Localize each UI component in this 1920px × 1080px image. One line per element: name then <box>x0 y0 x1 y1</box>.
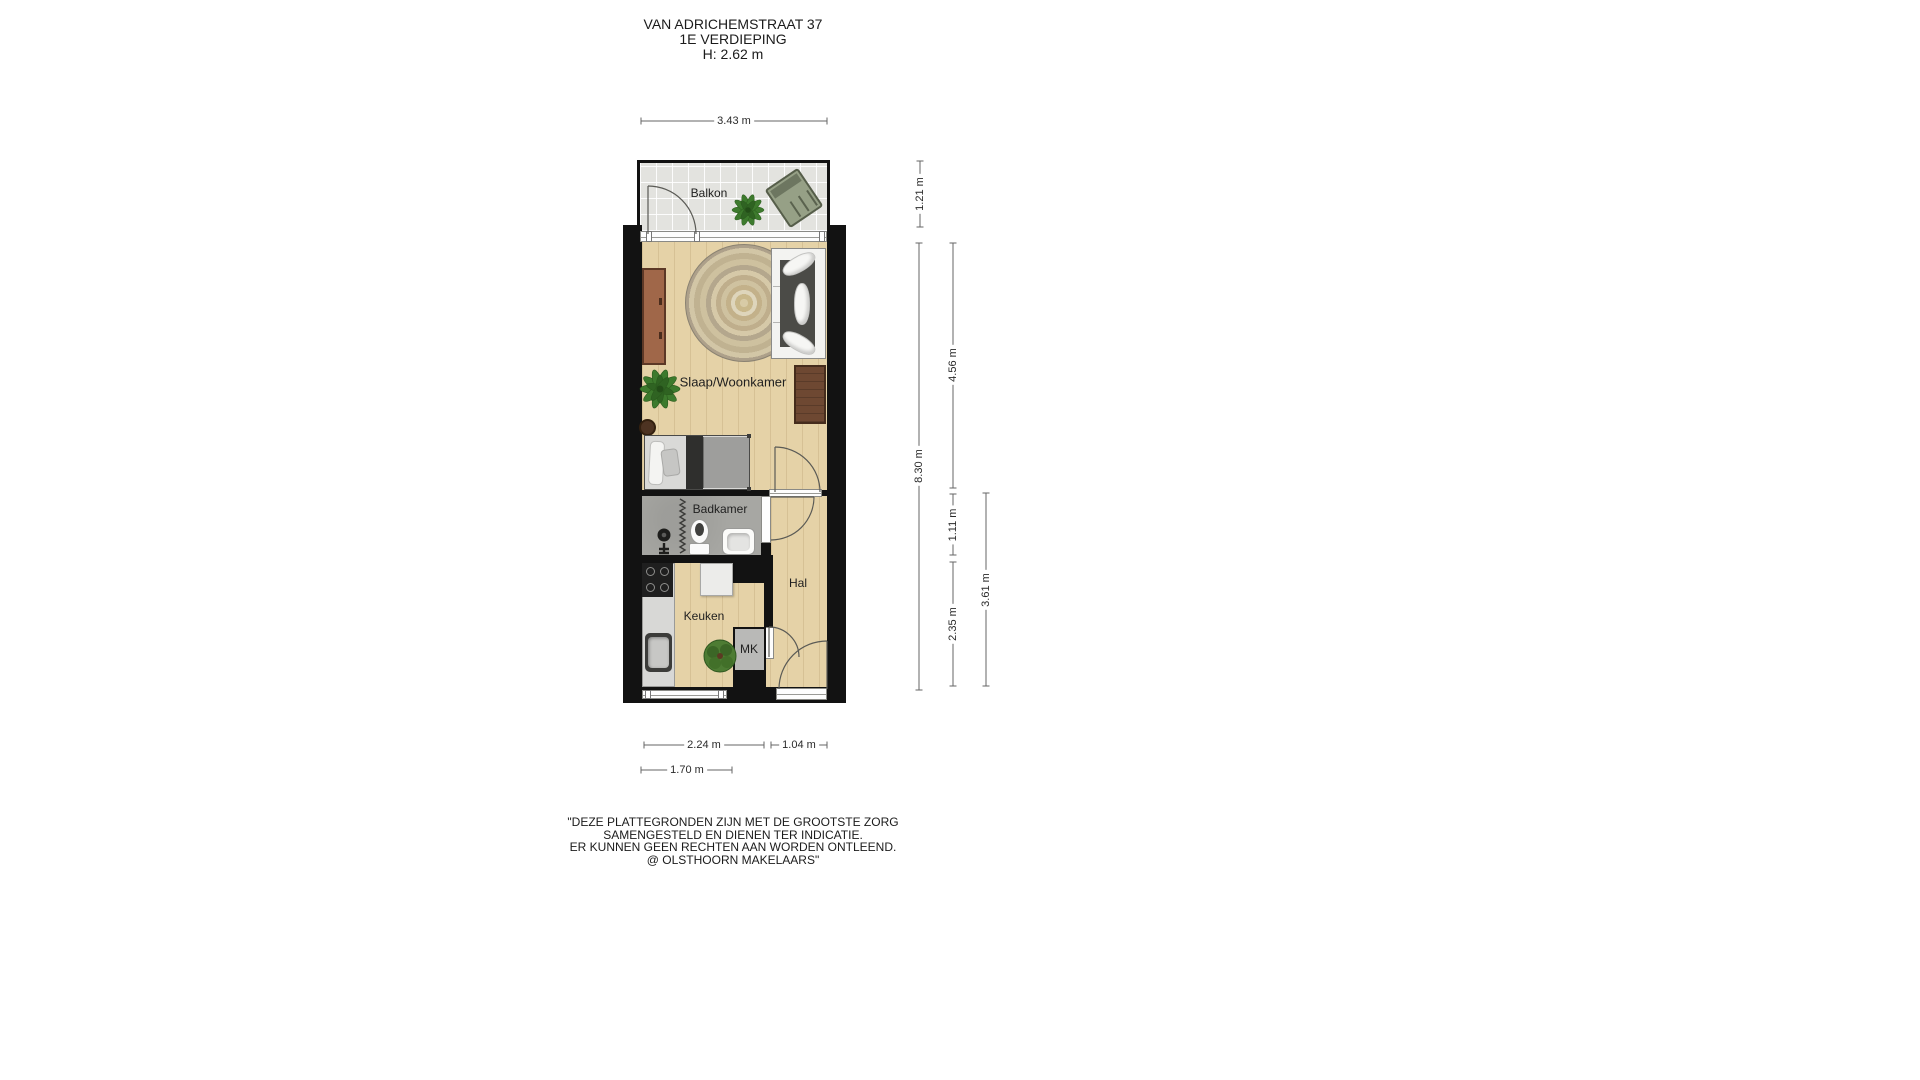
balcony-window-band <box>640 231 827 242</box>
sofa-seat-divider <box>773 286 780 287</box>
armchair-slat <box>798 196 809 212</box>
window-mullion <box>819 231 825 242</box>
sideboard-handle <box>659 332 662 339</box>
wall-kitchen-hall-b <box>764 583 773 627</box>
disclaimer-line: "DEZE PLATTEGRONDEN ZIJN MET DE GROOTSTE… <box>483 816 983 829</box>
coffee-table <box>794 365 826 424</box>
threshold-line <box>777 694 826 695</box>
dim-label-badkamer-depth: 1.11 m <box>947 506 959 545</box>
bed-center-strip <box>686 436 703 489</box>
armchair-slat <box>790 201 801 217</box>
sink-basin <box>727 533 750 551</box>
room-label-badkamer: Badkamer <box>693 502 748 516</box>
plan-overlay <box>0 0 1920 1080</box>
threshold-line <box>770 493 821 494</box>
wall-right <box>827 225 846 703</box>
sideboard <box>642 268 666 365</box>
window-mullion <box>718 690 724 699</box>
wall-bathroom-hall <box>761 543 771 555</box>
kitchen-sink-basin <box>648 637 669 668</box>
stove-burner <box>646 567 655 576</box>
wall-below-mk <box>733 672 766 703</box>
dim-label-keuken-width: 2.24 m <box>684 739 724 751</box>
wall-kitchen-hall-a <box>733 555 773 583</box>
sofa-seat-divider <box>773 322 780 323</box>
dim-label-woonkamer-depth: 4.56 m <box>947 345 959 385</box>
disclaimer: "DEZE PLATTEGRONDEN ZIJN MET DE GROOTSTE… <box>483 816 983 866</box>
wall-left <box>623 225 642 703</box>
toilet-tank <box>689 543 710 555</box>
title-address: VAN ADRICHEMSTRAAT 37 <box>533 17 933 32</box>
bathroom-doorway <box>761 496 771 543</box>
kitchen-sink <box>645 633 672 672</box>
hall-floor <box>771 496 827 687</box>
bed-post <box>747 434 751 438</box>
dim-label-total-depth: 8.30 m <box>913 446 925 486</box>
room-label-keuken: Keuken <box>684 609 725 623</box>
kitchen-table <box>700 563 733 596</box>
dim-label-balkon-width: 3.43 m <box>714 115 754 127</box>
bathroom-sink <box>722 528 755 555</box>
bed <box>644 435 750 490</box>
room-label-slaapwoonkamer: Slaap/Woonkamer <box>680 375 787 390</box>
front-door-threshold <box>776 688 827 700</box>
window-mullion <box>645 690 651 699</box>
dim-label-hal-depth: 3.61 m <box>980 570 992 610</box>
bed-post <box>747 487 751 491</box>
stove-burner <box>660 567 669 576</box>
sofa <box>771 248 826 359</box>
dim-label-balkon-depth: 1.21 m <box>914 174 926 214</box>
dim-label-aanrecht-width: 1.70 m <box>667 764 707 776</box>
stove-burner <box>660 583 669 592</box>
window-mullion <box>646 231 652 242</box>
disclaimer-line: ER KUNNEN GEEN RECHTEN AAN WORDEN ONTLEE… <box>483 841 983 854</box>
stove-burner <box>646 583 655 592</box>
floor-plan-page: VAN ADRICHEMSTRAAT 37 1E VERDIEPING H: 2… <box>0 0 1920 1080</box>
window-frame-line <box>643 695 726 696</box>
title-floor: 1E VERDIEPING <box>533 32 933 47</box>
pouf <box>639 419 656 436</box>
living-hall-door-threshold <box>769 489 822 497</box>
room-label-balkon: Balkon <box>691 186 728 200</box>
sofa-cushion <box>794 283 810 325</box>
toilet-seat <box>695 523 704 536</box>
bed-blanket <box>703 437 749 488</box>
wall-living-hall-stub <box>822 490 827 496</box>
sideboard-handle <box>659 298 662 305</box>
bed-pillow <box>660 448 681 477</box>
title-block: VAN ADRICHEMSTRAAT 37 1E VERDIEPING H: 2… <box>533 17 933 62</box>
disclaimer-line: @ OLSTHOORN MAKELAARS" <box>483 854 983 867</box>
dim-label-entree-width: 1.04 m <box>779 739 819 751</box>
kitchen-window-band <box>642 690 727 699</box>
title-ceiling-height: H: 2.62 m <box>533 47 933 62</box>
toilet-bowl <box>690 519 709 544</box>
dim-label-keuken-depth: 2.35 m <box>947 604 959 644</box>
room-label-hal: Hal <box>789 576 807 590</box>
window-frame-line <box>641 237 826 238</box>
stove <box>642 563 673 597</box>
window-mullion <box>694 231 700 242</box>
room-label-mk: MK <box>740 642 758 656</box>
